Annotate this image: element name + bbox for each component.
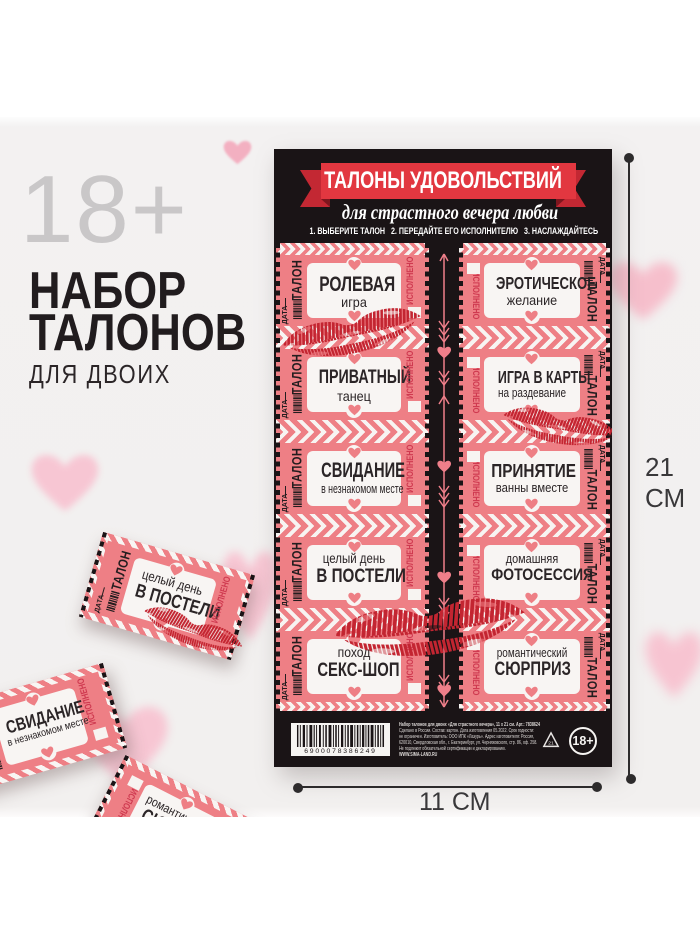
svg-text:21: 21: [548, 741, 554, 747]
